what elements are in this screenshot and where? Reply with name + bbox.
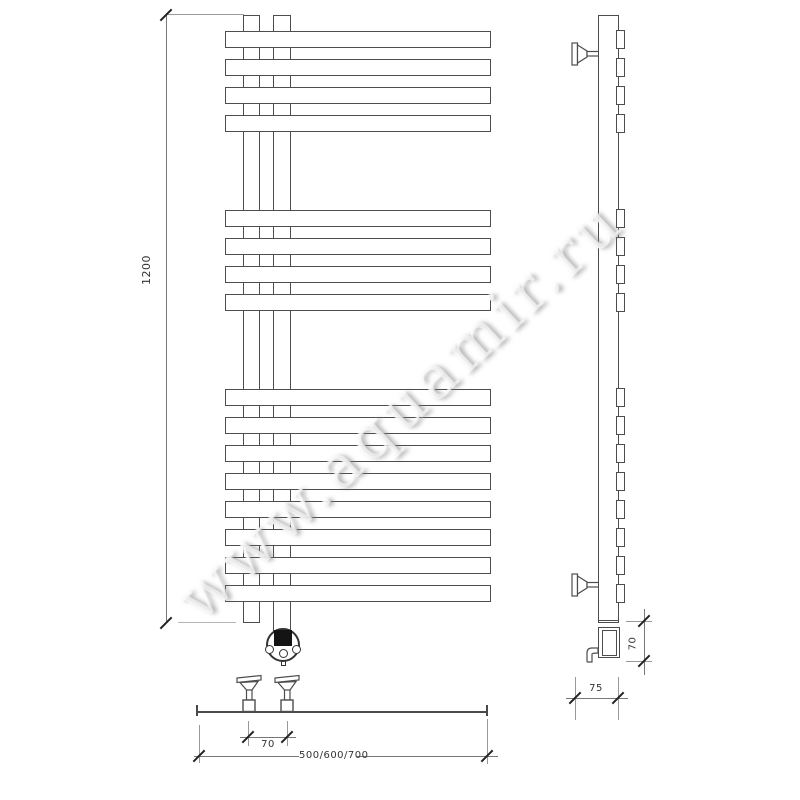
- towel-bar: [225, 115, 491, 132]
- bar-profile: [616, 265, 625, 284]
- towel-bar: [225, 445, 491, 462]
- towel-bar: [225, 501, 491, 518]
- valve-fitting-left: [236, 674, 262, 712]
- valve-spacing-label: 70: [252, 739, 284, 750]
- bar-profile: [616, 528, 625, 547]
- towel-bar: [225, 294, 491, 311]
- towel-bar: [225, 87, 491, 104]
- bar-profile: [616, 114, 625, 133]
- wall-bracket-bottom: [571, 573, 601, 597]
- bar-profile: [616, 58, 625, 77]
- bar-profile: [616, 556, 625, 575]
- bar-profile: [616, 237, 625, 256]
- bar-profile: [616, 416, 625, 435]
- wall-bracket-top: [571, 42, 601, 66]
- towel-bar: [225, 473, 491, 490]
- heater-box-side-inner: [602, 630, 617, 656]
- cable-hook: [583, 644, 599, 664]
- bar-profile: [616, 30, 625, 49]
- heater-knob: [292, 645, 301, 654]
- towel-bar: [225, 389, 491, 406]
- valve-fitting-right: [274, 674, 300, 712]
- towel-bar: [225, 238, 491, 255]
- heater-cap-square: [274, 630, 292, 646]
- towel-bar: [225, 417, 491, 434]
- bar-profile: [616, 293, 625, 312]
- towel-bar: [225, 529, 491, 546]
- bar-profile: [616, 500, 625, 519]
- towel-bar: [225, 557, 491, 574]
- bar-profile: [616, 472, 625, 491]
- towel-bar: [225, 585, 491, 602]
- heater-height-label: 70: [628, 630, 639, 658]
- bar-profile: [616, 584, 625, 603]
- bar-profile: [616, 209, 625, 228]
- depth-dimension-label: 75: [582, 683, 610, 694]
- bar-profile: [616, 388, 625, 407]
- towel-bar: [225, 210, 491, 227]
- heater-knob: [265, 645, 274, 654]
- towel-bar: [225, 31, 491, 48]
- technical-drawing-canvas: 1200 70 500/600/700: [0, 0, 800, 800]
- bar-profile: [616, 86, 625, 105]
- width-dimension-label: 500/600/700: [299, 750, 357, 761]
- bar-profile: [616, 444, 625, 463]
- towel-bar: [225, 59, 491, 76]
- side-panel-bottom-line: [599, 620, 618, 621]
- heater-knob: [279, 649, 288, 658]
- towel-bar: [225, 266, 491, 283]
- height-dimension-label: 1200: [140, 250, 154, 290]
